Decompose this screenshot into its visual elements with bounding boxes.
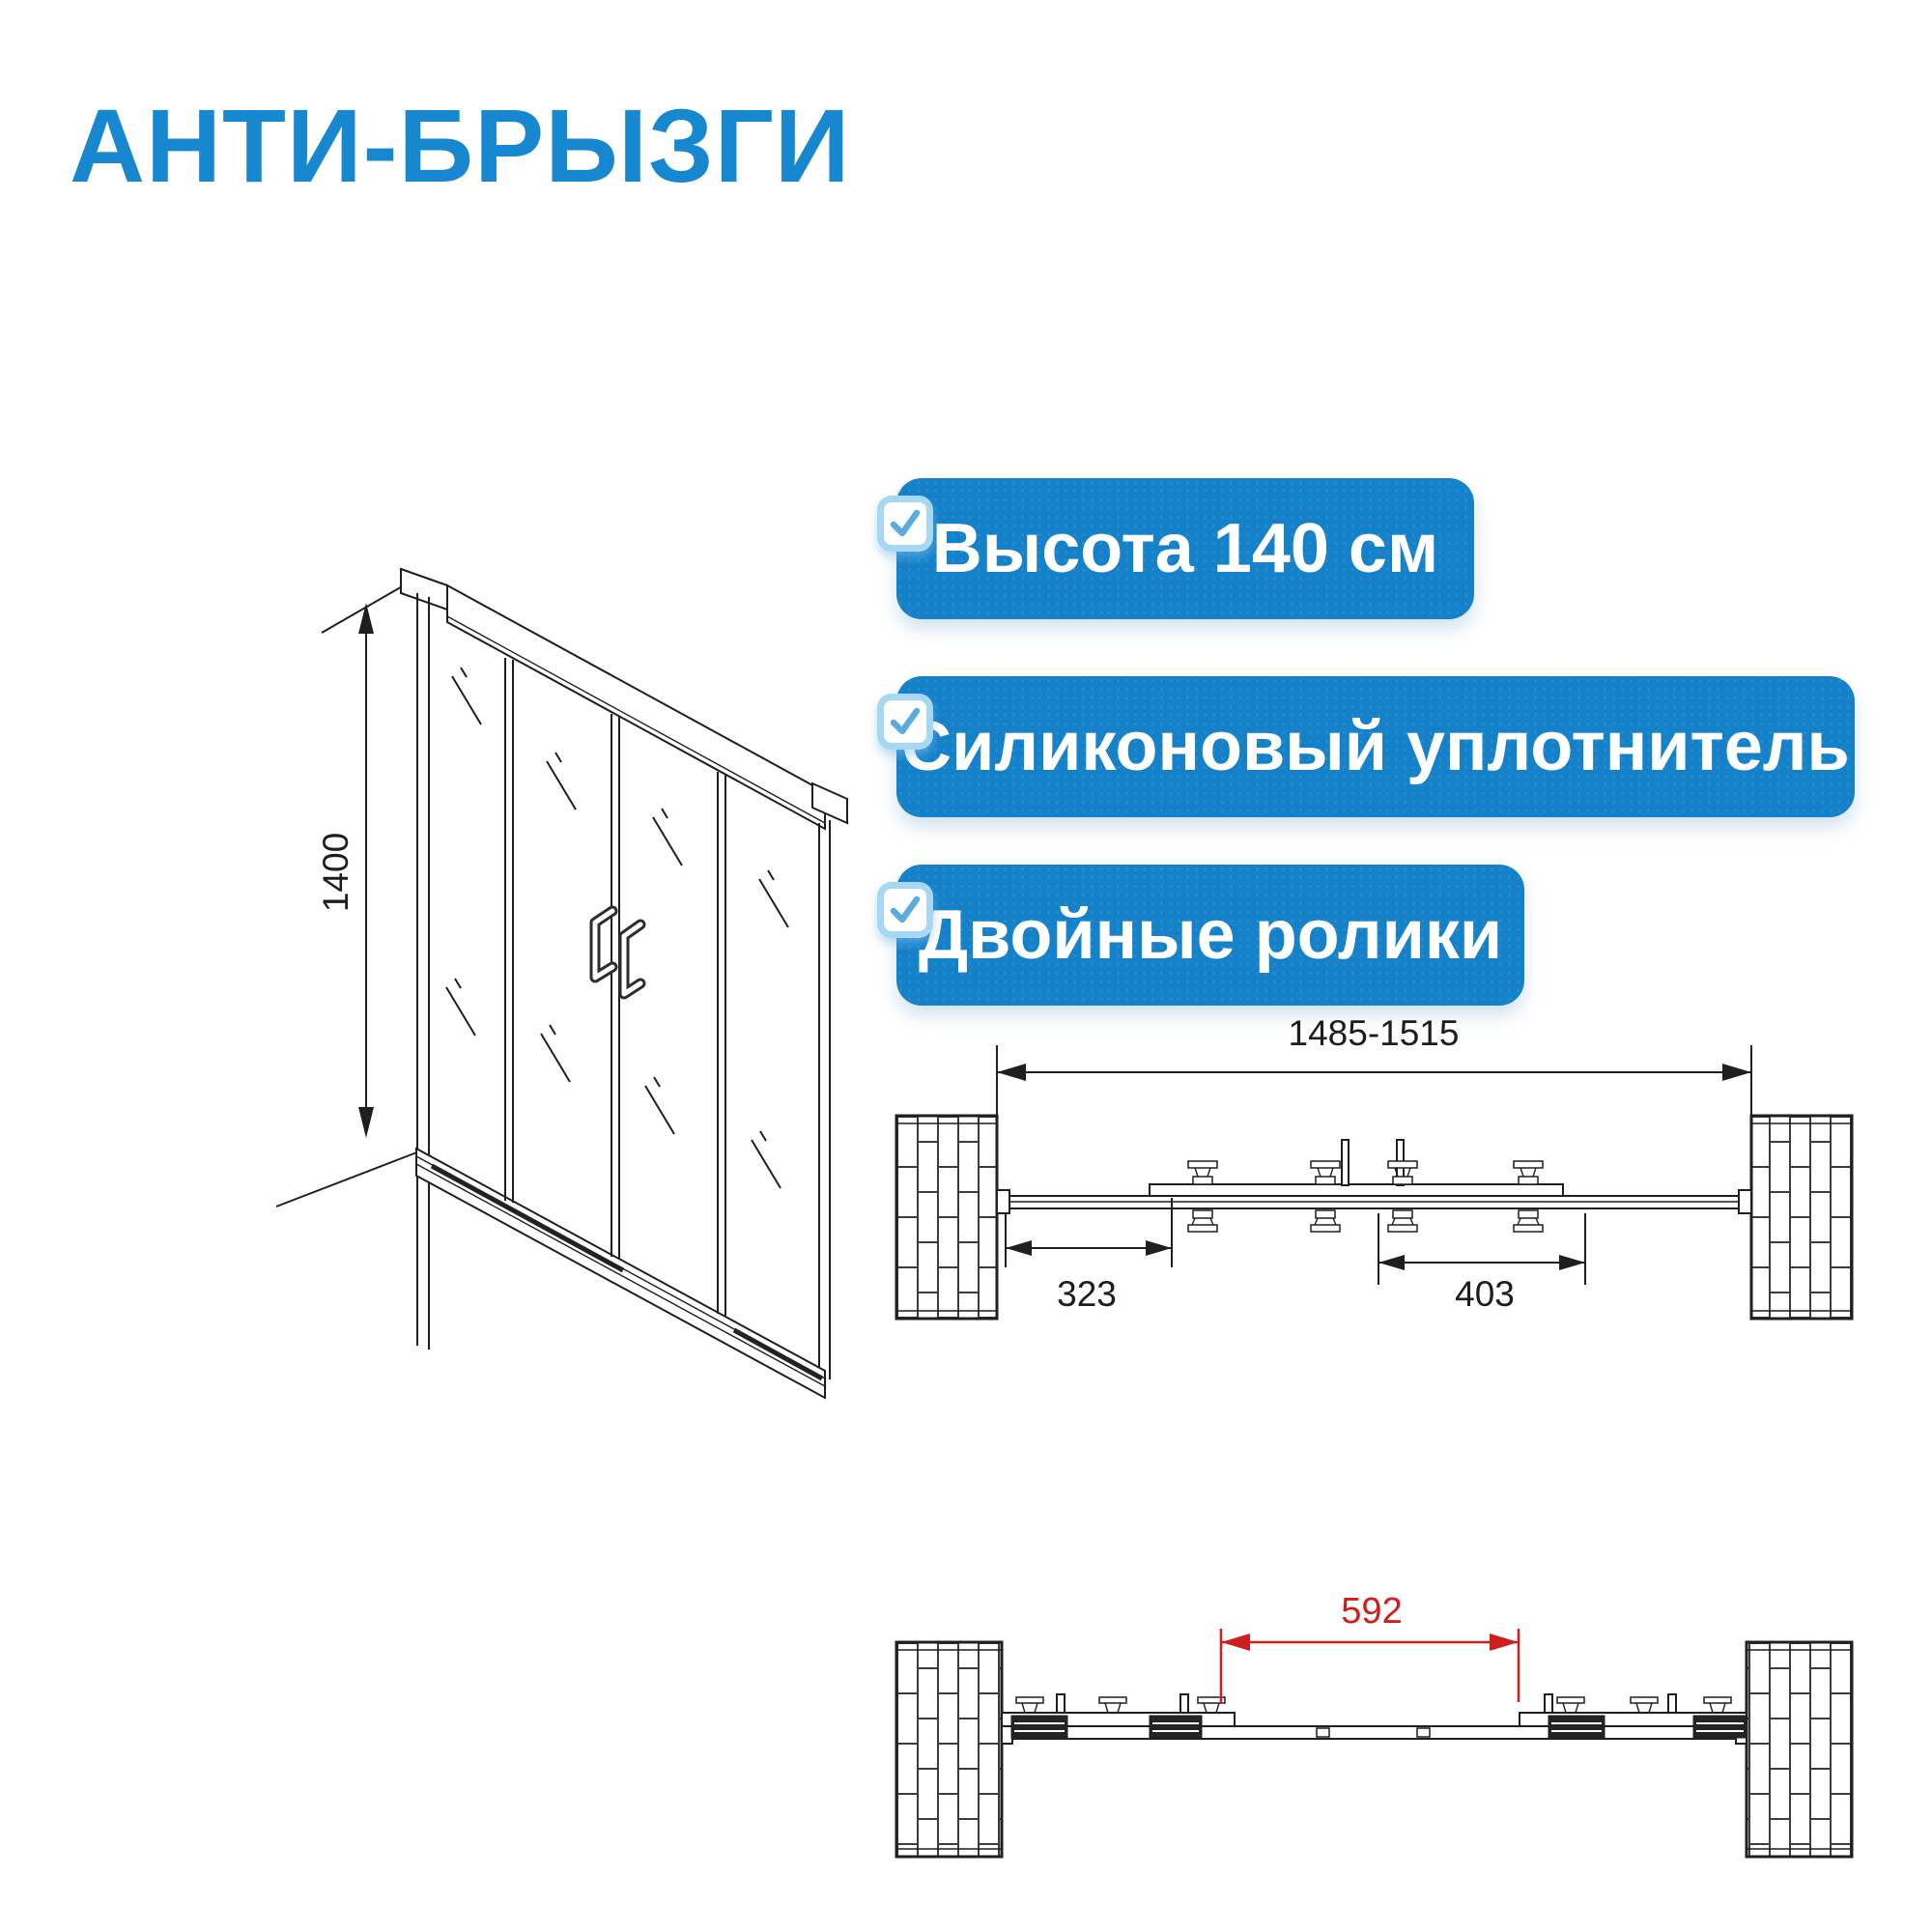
feature-badge-height: Высота 140 см: [896, 478, 1474, 619]
right-offset-dimension-label: 403: [1455, 1274, 1515, 1314]
brick-wall-left: [896, 1642, 1002, 1857]
feature-badge-label: Двойные ролики: [919, 895, 1502, 975]
brick-wall-right: [1747, 1642, 1852, 1857]
brick-wall-right: [1751, 1116, 1852, 1319]
checkmark-icon: [883, 888, 927, 932]
left-offset-dimension-label: 323: [1057, 1274, 1117, 1314]
overall-width-dimension: 1485-1515: [997, 1014, 1751, 1116]
clear-opening-dimension: 592: [1221, 1591, 1519, 1702]
checkmark-icon: [883, 699, 927, 744]
top-view-closed-drawing: 1485-1515: [869, 1014, 1893, 1401]
height-dimension: 1400: [276, 578, 419, 1207]
feature-badge-label: Высота 140 см: [932, 509, 1438, 588]
left-offset-dimension: 323: [1006, 1198, 1172, 1314]
brick-wall-left: [896, 1116, 997, 1319]
door-stack-right: [1520, 1694, 1747, 1738]
feature-badge-seal: Силиконовый уплотнитель: [896, 676, 1855, 817]
door-stack-left: [1002, 1694, 1235, 1738]
checkmark-icon: [883, 501, 927, 546]
front-view-drawing: 1400: [251, 541, 889, 1410]
feature-badge-rollers: Двойные ролики: [896, 865, 1524, 1006]
top-view-open-drawing: 592: [869, 1546, 1893, 1932]
clear-opening-dimension-label: 592: [1341, 1591, 1402, 1632]
height-dimension-label: 1400: [316, 833, 355, 912]
feature-badge-label: Силиконовый уплотнитель: [901, 707, 1850, 786]
infographic-canvas: АНТИ-БРЫЗГИ Высота 140 см Силиконовый уп…: [0, 0, 1932, 1932]
page-title: АНТИ-БРЫЗГИ: [70, 85, 850, 206]
door-handles-icon: [595, 911, 640, 994]
overall-width-dimension-label: 1485-1515: [1289, 1014, 1460, 1053]
track-profile: [997, 1140, 1751, 1213]
